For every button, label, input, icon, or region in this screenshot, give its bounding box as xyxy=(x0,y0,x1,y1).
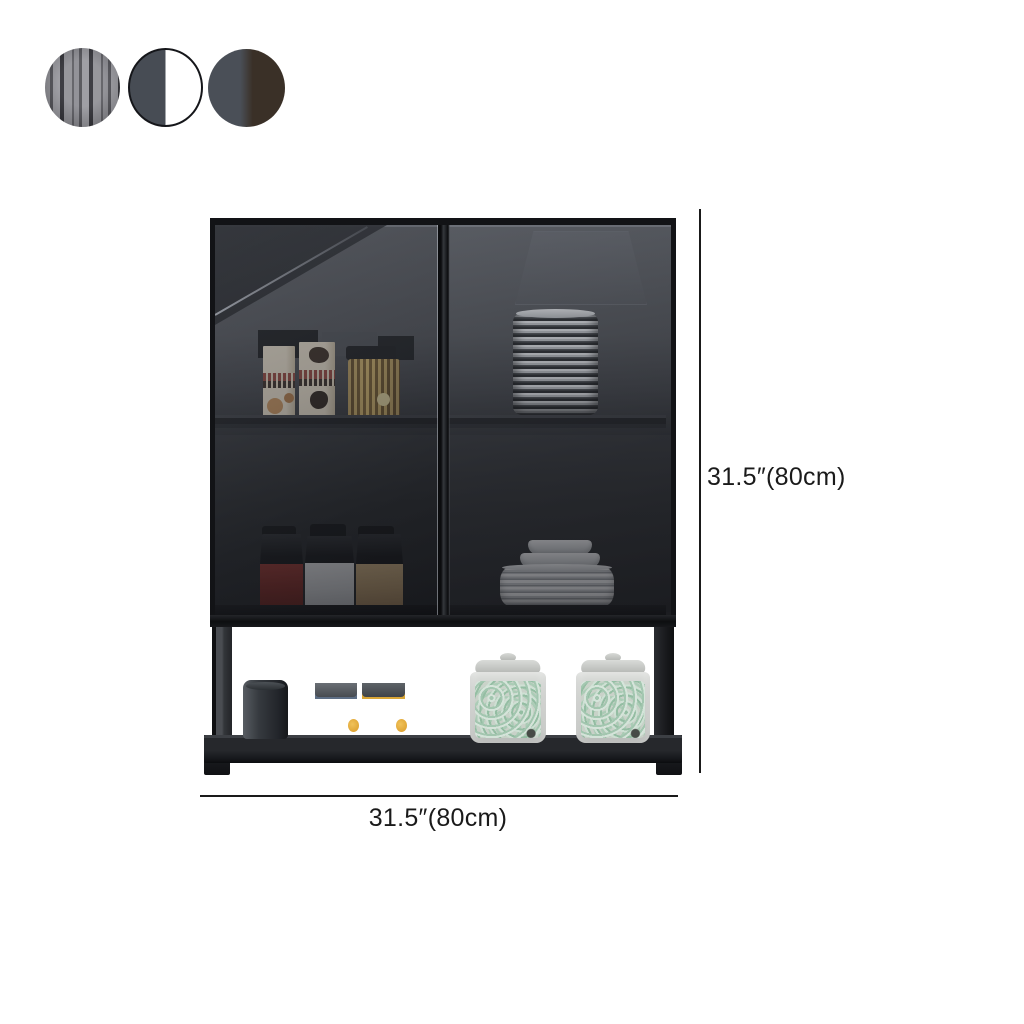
product-dimension-image: 31.5″(80cm) 31.5″(80cm) xyxy=(0,0,1024,1024)
yellow-badge xyxy=(396,719,407,732)
height-dimension-label: 31.5″(80cm) xyxy=(707,463,846,492)
bottle-base xyxy=(315,683,357,697)
yellow-badge xyxy=(348,719,359,732)
shelf-support-right xyxy=(654,627,674,739)
spice-bottle-blue-label xyxy=(315,683,357,743)
swatch-gray-brown[interactable] xyxy=(208,49,285,127)
open-shelf-section xyxy=(210,627,676,763)
width-dimension-line xyxy=(200,795,678,797)
noodle-jar xyxy=(470,653,546,743)
bottle-base xyxy=(362,683,405,697)
cabinet-frame xyxy=(210,218,676,627)
noodle-jar xyxy=(576,653,650,743)
width-dimension-label: 31.5″(80cm) xyxy=(288,804,588,833)
green-noodles xyxy=(581,681,645,738)
swatch-fluted-gray[interactable] xyxy=(45,48,120,127)
wall-cabinet xyxy=(210,218,676,763)
height-dimension-line xyxy=(699,209,701,773)
material-swatches xyxy=(0,0,1024,140)
spice-bottle-yellow-label xyxy=(362,683,405,743)
dark-canister xyxy=(243,680,288,739)
shelf-support-left xyxy=(212,627,232,739)
glass-door-section xyxy=(210,218,676,627)
cabinet-bottom-rail xyxy=(210,615,676,627)
swatch-gray-white[interactable] xyxy=(128,48,203,127)
green-noodles xyxy=(475,681,541,738)
